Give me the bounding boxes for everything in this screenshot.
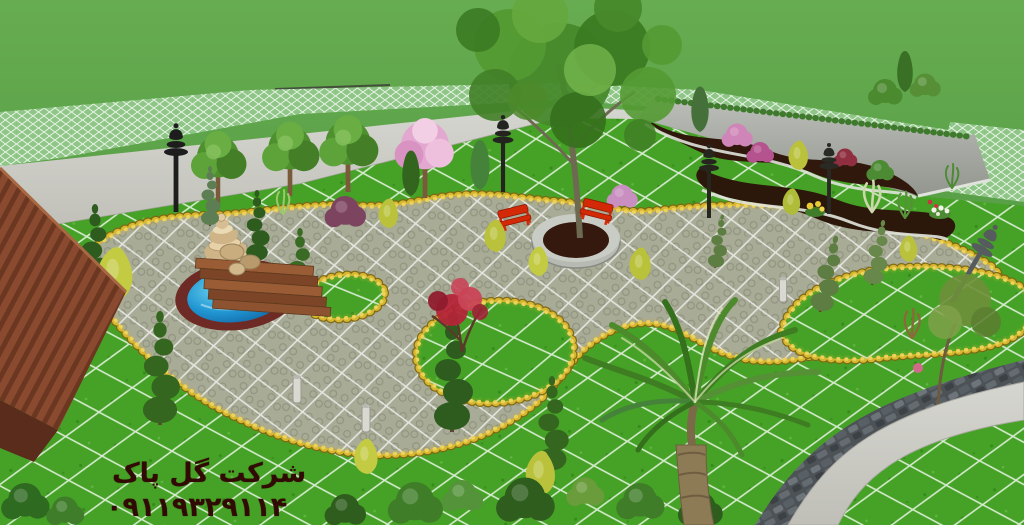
bollard (362, 404, 370, 432)
palm-trunk-top (691, 402, 695, 445)
garden-3d-scene (0, 0, 1024, 525)
yellow-flower (807, 203, 814, 210)
garden-render-stage: شرکت گل پاک ۰۹۱۱۹۳۲۹۱۱۴ (0, 0, 1024, 525)
leaning-tree-canopy (928, 305, 962, 339)
pink-flower (913, 363, 923, 373)
watermark-company-name: شرکت گل پاک (112, 458, 306, 489)
wooden-steps (193, 258, 334, 317)
yellow-flower (815, 201, 821, 207)
leaning-tree-canopy (971, 307, 1001, 337)
red-flower (934, 204, 938, 208)
bollard (779, 277, 786, 302)
bollard (293, 375, 301, 403)
yellow-flower (819, 206, 824, 211)
red-flower (928, 200, 933, 205)
planter-soil (543, 222, 609, 258)
watermark-phone-number: ۰۹۱۱۹۳۲۹۱۱۴ (106, 492, 287, 523)
